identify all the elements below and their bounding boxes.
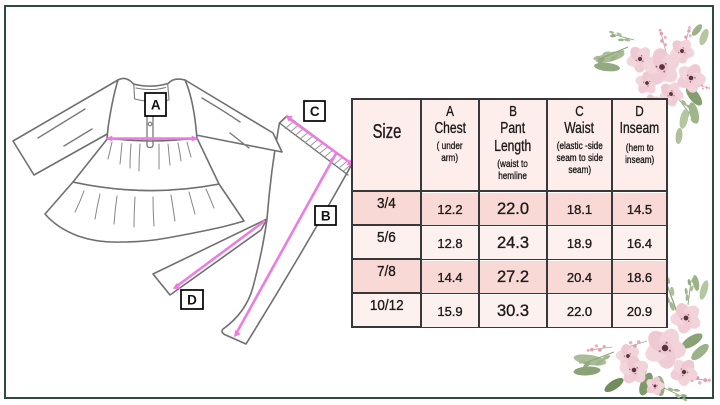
svg-text:D: D (187, 293, 197, 308)
svg-text:A: A (151, 98, 161, 113)
svg-text:C: C (310, 104, 320, 119)
svg-text:B: B (321, 209, 331, 224)
